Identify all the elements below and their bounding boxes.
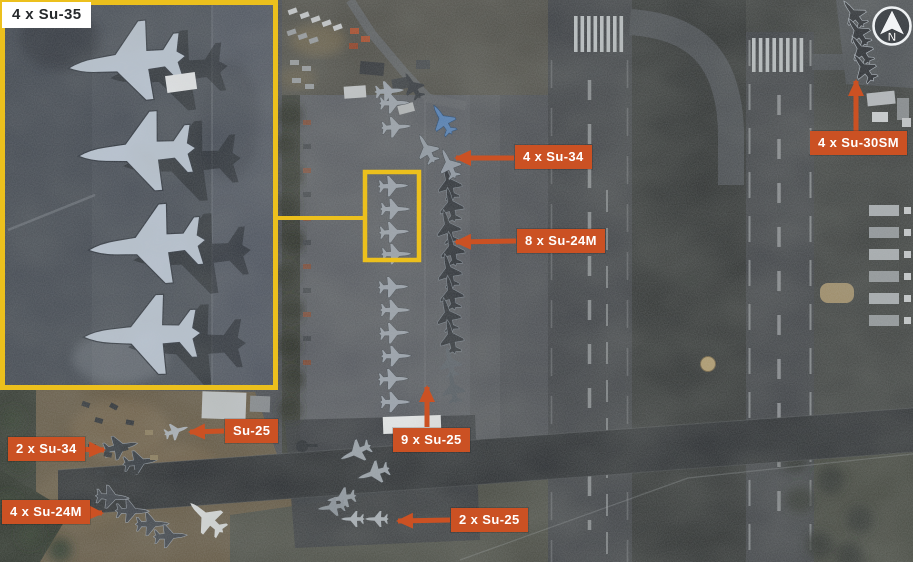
arrow-su24m-east xyxy=(456,241,516,242)
arrow-su25-single xyxy=(190,431,224,432)
annotation-su25-nine: 9 x Su-25 xyxy=(393,428,470,452)
north-arrow-icon: N xyxy=(874,8,911,45)
annotation-su25-single: Su-25 xyxy=(225,419,278,443)
annotation-su34-west: 2 x Su-34 xyxy=(8,437,85,461)
arrow-su25-two xyxy=(398,520,450,521)
annotation-su34-east: 4 x Su-34 xyxy=(515,145,592,169)
compass-letter: N xyxy=(888,30,897,44)
annotation-su24m-east: 8 x Su-24M xyxy=(517,229,605,253)
inset-label-su35: 4 x Su-35 xyxy=(2,2,91,28)
inset-zoom-view xyxy=(0,0,278,390)
annotation-su24m-west: 4 x Su-24M xyxy=(2,500,90,524)
satellite-annotated-image: N 4 x Su-35 4 x Su-34 8 x Su-24M 4 x Su-… xyxy=(0,0,913,562)
annotation-su25-two: 2 x Su-25 xyxy=(451,508,528,532)
annotation-su30sm: 4 x Su-30SM xyxy=(810,131,907,155)
satellite-scene: N xyxy=(0,0,913,562)
